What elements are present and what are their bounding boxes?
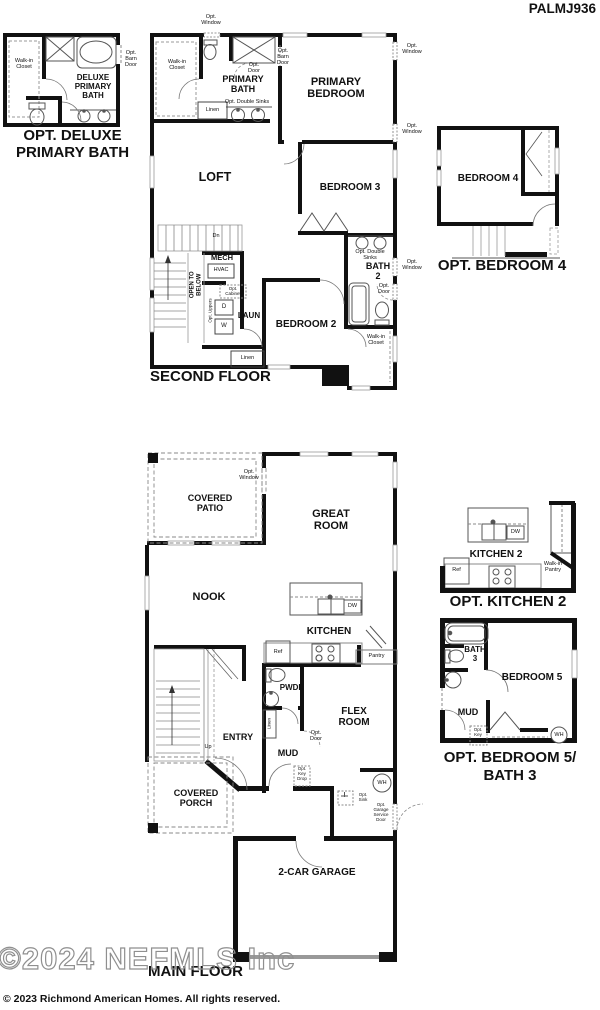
room-label-laun: LAUN <box>233 312 265 321</box>
room-label-walk-in-closet-deluxe: Walk-in Closet <box>6 58 42 70</box>
annotation-opt-door-shower: Opt. Door <box>242 62 266 74</box>
room-label-bedroom4: BEDROOM 4 <box>448 173 528 184</box>
toilet-icon <box>445 650 450 663</box>
main-floor-stairs <box>154 649 238 761</box>
label-linen-2: Linen <box>231 355 264 361</box>
bedroom5-inset-fixtures <box>442 623 577 745</box>
label-dishwasher-k2: DW <box>507 529 524 535</box>
annotation-opt-door-flex: Opt. Door <box>304 730 328 742</box>
room-label-bedroom3: BEDROOM 3 <box>310 182 390 193</box>
caption-opt-bedroom4: OPT. BEDROOM 4 <box>432 258 572 275</box>
label-washer: W <box>215 323 233 330</box>
annotation-opt-window-patio: Opt. Window <box>234 469 264 481</box>
caption-opt-bedroom5-bath3: OPT. BEDROOM 5/ BATH 3 <box>435 749 585 784</box>
room-label-loft: LOFT <box>190 170 240 184</box>
room-label-nook: NOOK <box>185 591 233 603</box>
kitchen-island <box>468 508 528 542</box>
annotation-opt-key-drop-b5: Opt. Key Drop <box>468 727 488 742</box>
annotation-opt-double-sinks: Opt. Double Sinks <box>221 99 273 105</box>
annotation-opt-window-right-2: Opt. Window <box>399 123 425 135</box>
room-label-bath3: BATH 3 <box>461 646 489 664</box>
annotation-opt-garage-service-door: Opt. Garage Service Door <box>366 802 396 822</box>
room-label-bedroom2: BEDROOM 2 <box>266 319 346 330</box>
stove-icon <box>489 566 515 588</box>
stove-icon <box>312 644 340 663</box>
label-water-heater: WH <box>373 780 391 786</box>
bifold-closet-doors <box>300 213 348 231</box>
annotation-opt-window-right-1: Opt. Window <box>399 43 425 55</box>
label-hvac: HVAC <box>209 267 233 273</box>
caption-opt-kitchen2: OPT. KITCHEN 2 <box>438 594 578 611</box>
label-linen-main: Linen <box>266 707 271 741</box>
room-label-bath2: BATH 2 <box>361 261 395 281</box>
room-label-kitchen2: KITCHEN 2 <box>456 549 536 560</box>
label-linen-1: Linen <box>198 107 227 113</box>
room-label-deluxe-primary-bath: DELUXE PRIMARY BATH <box>67 74 119 101</box>
room-label-garage: 2-CAR GARAGE <box>267 867 367 878</box>
toilet-icon <box>29 103 45 109</box>
room-label-primary-bath: PRIMARY BATH <box>219 74 267 94</box>
copyright-text: © 2023 Richmond American Homes. All righ… <box>3 993 280 1005</box>
annotation-opt-barn-door: Opt. Barn Door <box>271 48 295 66</box>
caption-second-floor: SECOND FLOOR <box>150 369 271 386</box>
patio-corner-post <box>148 453 158 463</box>
room-label-mud: MUD <box>270 748 306 758</box>
caption-opt-deluxe-primary-bath: OPT. DELUXE PRIMARY BATH <box>0 128 145 162</box>
room-label-great-room: GREAT ROOM <box>301 508 361 533</box>
bifold-closet-doors <box>490 712 520 730</box>
annotation-opt-key-drop: Opt. Key Drop <box>292 766 312 781</box>
opt-sink-box <box>338 791 353 805</box>
label-walk-in-pantry: Walk-in Pantry <box>537 561 569 573</box>
label-water-heater-b5: WH <box>550 732 568 738</box>
label-pantry: Pantry <box>356 653 397 659</box>
annotation-opt-uppers: Opt. Uppers <box>207 285 212 337</box>
room-label-entry: ENTRY <box>220 732 256 742</box>
annotation-up: Up <box>198 744 218 750</box>
floor-plan-page: PALMJ936 Walk-in Closet DELUXE PRIMARY B… <box>0 0 600 1010</box>
annotation-opt-window-top: Opt. Window <box>191 14 231 26</box>
label-refrigerator: Ref <box>266 649 290 655</box>
label-dryer: D <box>215 304 233 311</box>
room-label-kitchen: KITCHEN <box>305 626 353 637</box>
room-label-bedroom5: BEDROOM 5 <box>492 672 572 683</box>
room-label-walk-in-closet-2: Walk-in Closet <box>356 334 396 346</box>
annotation-opt-sink: Opt. Sink <box>352 792 374 802</box>
annotation-open-to-below: OPEN TO BELOW <box>189 261 202 309</box>
toilet-icon <box>376 302 389 318</box>
watermark-text: ©2024 NEFMLS Inc <box>0 941 295 977</box>
annotation-dn: Dn <box>206 233 226 239</box>
room-label-mech: MECH <box>204 254 240 262</box>
closet-shelf <box>156 42 196 116</box>
room-label-covered-porch: COVERED PORCH <box>168 788 224 808</box>
room-label-mud-b5: MUD <box>450 707 486 717</box>
room-label-walk-in-closet-1: Walk-in Closet <box>155 59 199 71</box>
annotation-opt-double-sinks-2: Opt. Double Sinks <box>349 249 391 261</box>
bedroom4-inset-walls <box>437 126 559 258</box>
room-label-pwdr: PWDR <box>274 684 310 693</box>
sink-icon <box>356 237 368 249</box>
room-label-covered-patio: COVERED PATIO <box>179 493 241 513</box>
sink-icon <box>374 237 386 249</box>
room-label-flex-room: FLEX ROOM <box>330 706 378 728</box>
kitchen2-inset <box>444 504 573 588</box>
annotation-opt-barn-door-deluxe: Opt. Barn Door <box>119 50 143 68</box>
room-label-primary-bedroom: PRIMARY BEDROOM <box>296 76 376 101</box>
label-refrigerator-k2: Ref <box>444 567 469 573</box>
stairs <box>473 226 505 256</box>
under-stair-closet <box>206 649 238 679</box>
label-dishwasher: DW <box>344 603 361 609</box>
pantry-door <box>366 626 386 648</box>
bifold-closet-doors <box>526 132 542 176</box>
annotation-opt-cabinet: Opt. Cabinet <box>220 286 246 296</box>
annotation-opt-door-bath2: Opt. Door <box>372 283 396 295</box>
plan-id: PALMJ936 <box>460 1 598 16</box>
porch-corner-post <box>148 823 158 833</box>
annotation-opt-window-right-3: Opt. Window <box>399 259 425 271</box>
